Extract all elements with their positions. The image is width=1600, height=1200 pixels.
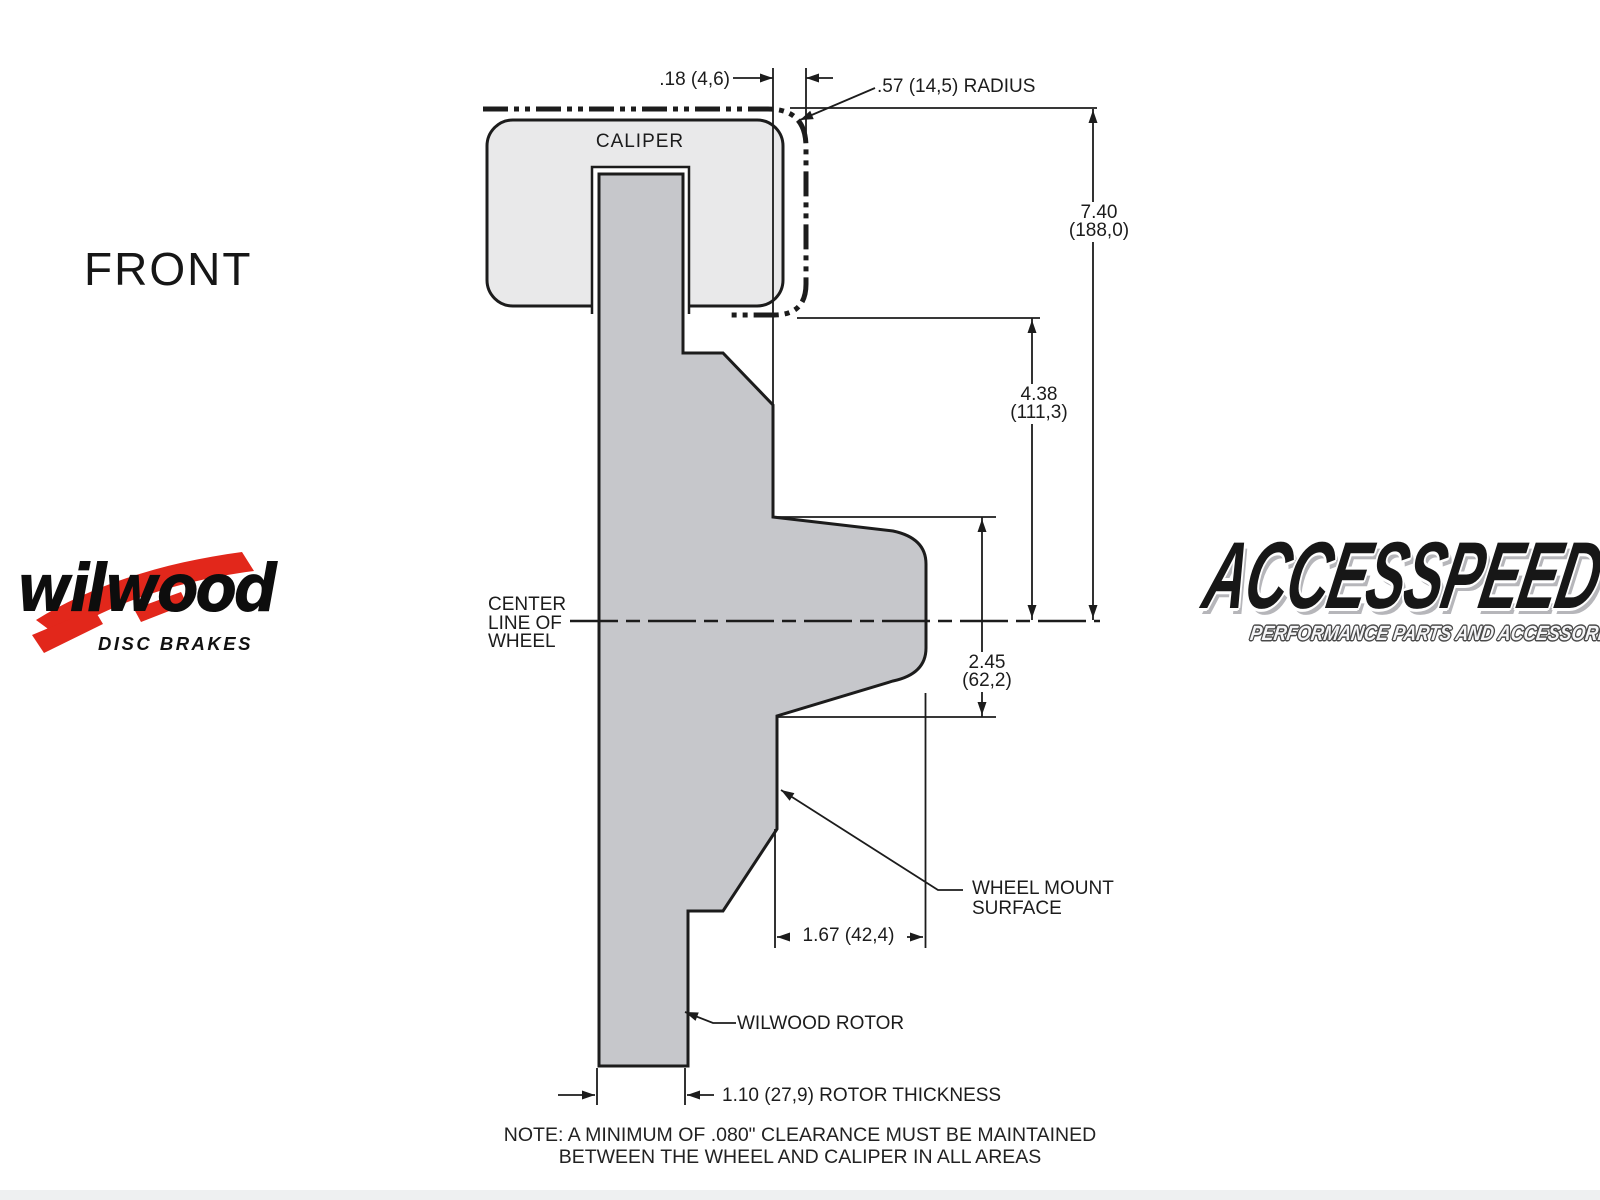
dim-radius-label: .57 (14,5) RADIUS bbox=[877, 77, 1035, 96]
rotor-thickness-label: 1.10 (27,9) ROTOR THICKNESS bbox=[722, 1086, 1001, 1105]
dim-overall-label: 7.40 (188,0) bbox=[1059, 202, 1139, 242]
note-line-1: NOTE: A MINIMUM OF .080" CLEARANCE MUST … bbox=[0, 1125, 1600, 1146]
wheel-mount-label: WHEEL MOUNT SURFACE bbox=[972, 879, 1114, 918]
caliper-label: CALIPER bbox=[588, 132, 692, 151]
wilwood-logo: wilwood DISC BRAKES bbox=[14, 538, 324, 658]
note-line-2: BETWEEN THE WHEEL AND CALIPER IN ALL ARE… bbox=[0, 1147, 1600, 1168]
accesspeed-tagline: PERFORMANCE PARTS AND ACCESSORIES bbox=[1249, 622, 1600, 646]
dim-hub-label: 2.45 (62,2) bbox=[947, 652, 1027, 692]
accesspeed-wordmark: ACCESSPEED bbox=[1198, 536, 1600, 616]
brake-dimension-diagram: FRONT CALIPER .18 (4,6) .57 (14,5) RADIU… bbox=[0, 0, 1600, 1200]
dim-upper-label: 4.38 (111,3) bbox=[999, 384, 1079, 424]
dim-mount-depth-label: 1.67 (42,4) bbox=[790, 925, 907, 947]
centerline-label: CENTER LINE OF WHEEL bbox=[488, 596, 566, 652]
accesspeed-logo: ACCESSPEED PERFORMANCE PARTS AND ACCESSO… bbox=[1208, 534, 1600, 649]
leader-wheel-mount bbox=[781, 790, 963, 890]
bottom-border-strip bbox=[0, 1190, 1600, 1200]
wilwood-wordmark: wilwood bbox=[16, 556, 274, 622]
wilwood-tagline: DISC BRAKES bbox=[98, 633, 253, 655]
dim-gap-label: .18 (4,6) bbox=[630, 70, 730, 89]
front-view-label: FRONT bbox=[84, 246, 252, 292]
rotor-callout-label: WILWOOD ROTOR bbox=[737, 1014, 904, 1033]
